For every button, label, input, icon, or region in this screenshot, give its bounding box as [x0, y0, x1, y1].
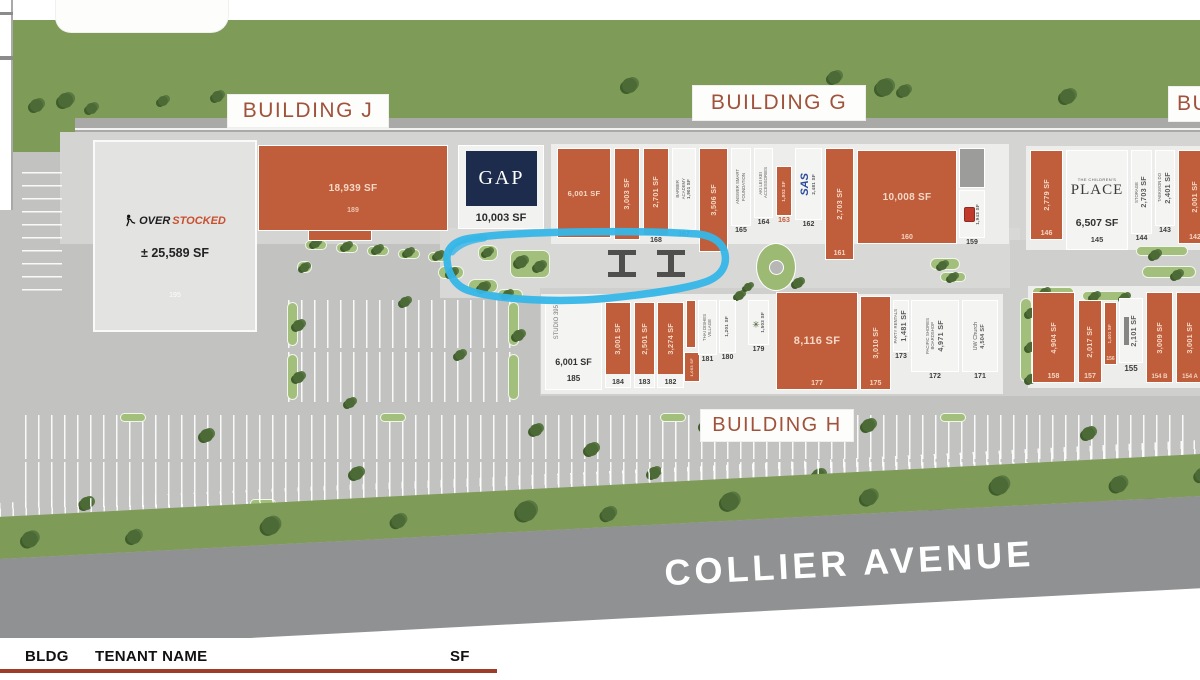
unit-163: 1,802 SF163 — [776, 166, 792, 216]
unit-number: 183 — [639, 379, 651, 386]
unit-svc-g — [959, 148, 985, 188]
tree-icon — [1150, 250, 1160, 260]
unit-154A: 3,001 SF154 A — [1176, 292, 1200, 383]
overstocked-logo-prefix: OVER — [139, 215, 170, 227]
tree-icon — [1110, 476, 1127, 493]
unit-146: 2,779 SF146 — [1030, 150, 1063, 240]
parking-stalls-0 — [288, 300, 518, 348]
tenant-name: UW Church — [974, 322, 980, 350]
tree-icon — [86, 103, 97, 114]
parking-stalls-2 — [22, 172, 62, 300]
unit-fill: 2,501 SF — [635, 303, 654, 374]
picnic-table-icon — [608, 250, 638, 278]
unit-157: 2,017 SF157 — [1078, 300, 1102, 383]
tree-icon — [350, 467, 363, 480]
unit-179: ✳1,503 SF179 — [748, 300, 769, 345]
unit-184: 3,001 SF184 — [605, 302, 631, 388]
unit-number: 155 — [1124, 364, 1137, 373]
unit-sf: 4,904 SF — [1050, 322, 1058, 354]
unit-156: 1,401 SF156 — [1104, 302, 1117, 365]
unit-sf: 8,116 SF — [794, 335, 840, 347]
planter — [120, 413, 146, 422]
unit-number: 189 — [347, 207, 359, 214]
curb-line — [75, 128, 1200, 130]
tree-icon — [342, 242, 351, 251]
unit-number: 162 — [803, 221, 815, 228]
palm-icon: ✳ — [751, 318, 760, 328]
unit-number: 144 — [1136, 235, 1148, 242]
legend-divider-line — [0, 669, 497, 673]
unit-number: 158 — [1048, 373, 1060, 380]
unit-sf: 10,008 SF — [883, 192, 932, 203]
unit-sf: 1,943 SF — [976, 204, 981, 225]
building-g-label: BUILDING G — [692, 85, 866, 121]
runner-icon — [124, 214, 137, 227]
unit-sf: 2,401 SF — [1164, 172, 1172, 204]
unit-sf: 3,009 SF — [1156, 322, 1164, 354]
tree-icon — [513, 330, 524, 341]
tree-icon — [516, 501, 537, 522]
unit-sf: 1,802 SF — [782, 181, 787, 202]
tree-icon — [404, 248, 413, 257]
unit-181: THAI DISHESVILLAGE181 — [698, 300, 717, 355]
tree-icon — [534, 261, 545, 272]
unit-number: 181 — [702, 356, 714, 363]
unit-142: 2,001 SF142 — [1178, 150, 1200, 244]
tree-icon — [898, 85, 910, 97]
tree-icon — [455, 350, 465, 360]
sas-logo: SAS — [800, 173, 812, 196]
unit-sliver-a — [686, 300, 696, 348]
unit-sf: 6,507 SF — [1067, 217, 1127, 229]
unit-175: 3,010 SF175 — [860, 296, 891, 390]
planter — [1142, 266, 1196, 278]
unit-number: 142 — [1189, 234, 1200, 241]
tenant-name: VILLAGE — [708, 319, 713, 337]
tenant-name: FOUNDATION — [742, 173, 747, 201]
unit-143: TAEKWON DO2,401 SF143 — [1155, 150, 1175, 226]
tree-icon — [948, 273, 957, 282]
unit-177: 8,116 SF177 — [776, 292, 858, 390]
tree-icon — [862, 419, 875, 432]
unit-number: 167 — [678, 231, 690, 238]
unit-sf: 6,001 SF — [568, 189, 601, 198]
unit-180: 1,201 SF180 — [719, 300, 736, 353]
street-name: COLLIER AVENUE — [663, 533, 1035, 594]
tree-icon — [1060, 89, 1075, 104]
unit-165: ANSWER SMARTFOUNDATION165 — [731, 148, 751, 226]
unit-159: 1,943 SF159 — [959, 190, 985, 238]
tree-icon — [530, 424, 542, 436]
tree-icon — [300, 263, 309, 272]
tree-icon — [447, 268, 457, 278]
unit-number: 160 — [901, 234, 913, 241]
tree-icon — [515, 256, 527, 268]
unit-number: 171 — [974, 373, 986, 380]
site-plan-canvas: 18,939 SF1896,001 SF3,003 SF2,701 SF168B… — [0, 0, 1200, 680]
unit-sf: 2,501 SF — [641, 323, 649, 355]
tree-icon — [720, 492, 739, 511]
unit-166: 3,506 SF — [699, 148, 728, 252]
tree-icon — [990, 476, 1009, 495]
unit-number: 177 — [811, 380, 823, 387]
fountain-planter — [756, 243, 796, 291]
unit-185: STUDIO 3956,001 SF185 — [545, 298, 602, 390]
unit-164: AKI LEI KEIACCESSORIES164 — [754, 148, 773, 218]
unit-number: 157 — [1084, 373, 1096, 380]
unit-158: 4,904 SF158 — [1032, 292, 1075, 383]
tree-icon — [503, 290, 512, 299]
unit-number: 164 — [758, 219, 770, 226]
unit-189: 18,939 SF189 — [258, 145, 448, 231]
unit-number: 146 — [1041, 230, 1053, 237]
tree-icon — [200, 429, 213, 442]
top-tab-shape — [55, 0, 229, 33]
unit-173: PARTY RENTALS1,481 SF173 — [893, 300, 909, 352]
studio-395-label: STUDIO 395 — [554, 305, 560, 339]
tree-icon — [860, 489, 877, 506]
unit-183: 2,501 SF183 — [634, 302, 655, 388]
left-edge-strip — [0, 0, 13, 210]
legend-col-bldg: BLDG — [25, 648, 69, 665]
planter — [660, 413, 686, 422]
picnic-bar — [668, 250, 674, 277]
unit-number: 159 — [966, 239, 978, 246]
unit-171: UW Church4,504 SF171 — [962, 300, 998, 372]
unit-170: 6,001 SF — [557, 148, 611, 238]
tree-icon — [938, 261, 947, 270]
unit-154B: 3,009 SF154 B — [1146, 292, 1173, 383]
unit-sf: 6,001 SF — [546, 357, 601, 367]
building-j-label: BUILDING J — [227, 94, 389, 128]
unit-number: 154 B — [1151, 374, 1167, 380]
overstocked-logo-suffix: STOCKED — [172, 215, 226, 227]
unit-sf: 2,017 SF — [1086, 326, 1094, 358]
unit-sf: 1,003 SF — [690, 358, 694, 377]
gap-logo: GAP — [466, 151, 537, 206]
unit-160: 10,008 SF160 — [857, 150, 957, 244]
unit-sf: 3,001 SF — [614, 323, 622, 355]
childrens-place-logo: PLACE — [1071, 183, 1124, 198]
unit-sliver-b: 1,003 SF — [684, 352, 700, 382]
unit-number: 156 — [1106, 356, 1114, 362]
building-f-label: BUILDING F — [1168, 86, 1200, 122]
unit-169: 3,003 SF — [614, 148, 640, 240]
unit-sf: 1,503 SF — [761, 312, 766, 333]
unit-162: SAS2,481 SF162 — [795, 148, 822, 220]
building-h-label: BUILDING H — [700, 409, 854, 442]
tree-icon — [158, 96, 168, 106]
tree-icon — [478, 282, 489, 293]
tree-icon — [30, 99, 43, 112]
unit-sf: 2,001 SF — [1191, 181, 1199, 213]
unit-sf: 1,481 SF — [900, 310, 908, 342]
planter — [380, 413, 406, 422]
gap-sf: 10,003 SF — [459, 212, 543, 224]
unit-sf: 2,481 SF — [812, 174, 817, 195]
unit-sf: 2,703 SF — [836, 188, 844, 220]
picnic-bar — [619, 250, 625, 277]
unit-144: STORAGE2,703 SF144 — [1131, 150, 1152, 234]
unit-number: 184 — [612, 379, 624, 386]
fountain-center — [769, 260, 784, 275]
grass-band — [13, 20, 1200, 118]
unit-sf: 4,504 SF — [981, 324, 987, 349]
unit-fill: 3,274 SF — [658, 303, 683, 374]
tree-icon — [1195, 468, 1200, 483]
unit-number: 182 — [665, 379, 677, 386]
planter — [508, 354, 519, 400]
tree-icon — [293, 320, 304, 331]
tree-icon — [793, 278, 803, 288]
tree-icon — [391, 514, 406, 529]
unit-sf: 3,001 SF — [1186, 322, 1194, 354]
tree-icon — [876, 79, 893, 96]
unit-172: PACIFIC SHORESBOARDSHOP4,971 SF172 — [911, 300, 959, 372]
parking-stalls-1 — [288, 352, 518, 402]
unit-sf: 1,901 SF — [687, 179, 692, 199]
unit-161: 2,703 SF161 — [825, 148, 854, 260]
unit-sf: 2,703 SF — [1140, 176, 1148, 208]
unit-sf: 2,101 SF — [1130, 315, 1138, 347]
tree-icon — [345, 398, 355, 408]
unit-sf: 1,401 SF — [1108, 324, 1112, 343]
tenant-icon — [964, 207, 975, 222]
overstocked-sf: ± 25,589 SF — [95, 246, 255, 260]
tree-icon — [400, 297, 410, 307]
unit-sf: 3,274 SF — [667, 323, 675, 355]
tree-icon — [1172, 270, 1182, 280]
planter — [1136, 246, 1188, 256]
unit-sf: 4,971 SF — [937, 320, 945, 352]
tree-icon — [601, 507, 616, 522]
unit-number: 165 — [735, 227, 747, 234]
legend-col-tenant: TENANT NAME — [95, 648, 207, 665]
unit-155: 2,101 SF155 — [1119, 298, 1143, 363]
unit-number: 185 — [567, 374, 580, 383]
tree-icon — [127, 530, 142, 545]
unit-sf: 3,003 SF — [623, 178, 631, 210]
unit-number: 161 — [834, 250, 846, 257]
unit-number: 163 — [778, 217, 790, 224]
tree-icon — [21, 531, 38, 548]
overstocked-unit-number: 195 — [95, 292, 255, 299]
left-edge-tick-1 — [0, 12, 13, 15]
tree-icon — [483, 248, 492, 257]
unit-gap-building: GAP 10,003 SF — [458, 145, 544, 229]
tree-icon — [744, 283, 752, 291]
unit-number: 168 — [650, 237, 662, 244]
tree-icon — [58, 93, 73, 108]
unit-number: 154 A — [1182, 374, 1198, 380]
planter — [940, 413, 966, 422]
unit-182: 3,274 SF182 — [657, 302, 684, 388]
left-edge-tick-2 — [0, 56, 13, 60]
unit-sf: 2,779 SF — [1043, 179, 1051, 211]
unit-number: 173 — [895, 353, 907, 360]
tree-icon — [735, 291, 744, 300]
tenant-name: ANSWER SMART — [736, 169, 741, 204]
tree-icon — [261, 516, 280, 535]
unit-number: 179 — [753, 346, 765, 353]
overstocked-logo: OVERSTOCKED — [95, 214, 255, 227]
unit-sf: 18,939 SF — [329, 183, 378, 194]
picnic-table-icon — [657, 250, 687, 278]
unit-sf: 3,506 SF — [710, 184, 718, 216]
tree-icon — [585, 443, 598, 456]
unit-168: 2,701 SF168 — [643, 148, 669, 236]
tree-icon — [828, 71, 841, 84]
tree-icon — [373, 245, 382, 254]
tenant-name: ACCESSORIES — [764, 167, 769, 198]
unit-sf: 2,701 SF — [652, 176, 660, 208]
unit-145: THE CHILDREN'SPLACE6,507 SF145 — [1066, 150, 1128, 250]
unit-sf: 1,201 SF — [725, 316, 730, 337]
legend-col-sf: SF — [450, 648, 470, 665]
tree-icon — [212, 91, 223, 102]
tree-icon — [293, 372, 304, 383]
unit-195-overstocked-building: OVERSTOCKED ± 25,589 SF 195 — [93, 140, 257, 332]
unit-number: 172 — [929, 373, 941, 380]
unit-number: 143 — [1159, 227, 1171, 234]
tree-icon — [434, 251, 443, 260]
unit-number: 175 — [870, 380, 882, 387]
tree-icon — [622, 78, 637, 93]
unit-number: 180 — [722, 354, 734, 361]
unit-number: 145 — [1091, 235, 1104, 244]
tree-icon — [1082, 427, 1095, 440]
unit-sf: 3,010 SF — [872, 327, 880, 359]
unit-167: BARBERACADEMY1,901 SF167 — [672, 148, 696, 230]
unit-fill: 3,001 SF — [606, 303, 630, 374]
